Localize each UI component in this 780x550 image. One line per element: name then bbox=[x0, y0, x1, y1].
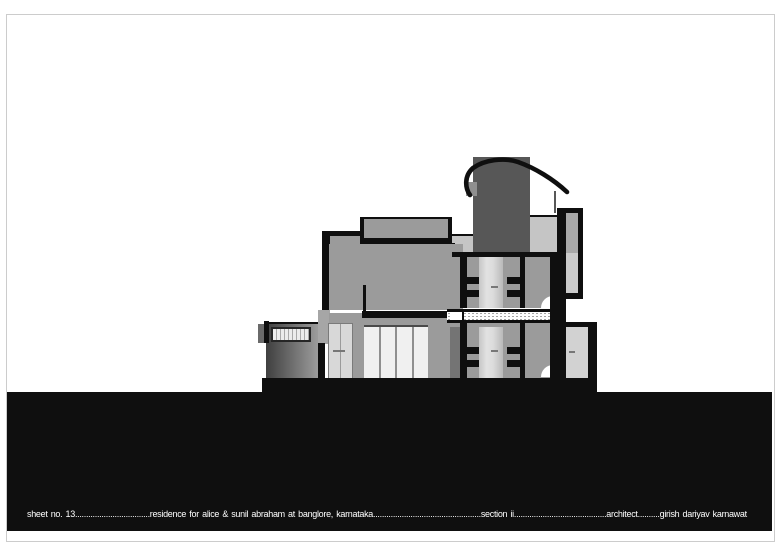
drawing-name-label: section ii bbox=[481, 509, 514, 519]
upper-room-left bbox=[329, 244, 463, 310]
door-lower-handle bbox=[491, 350, 498, 352]
dot-leader: ........................................… bbox=[373, 509, 481, 519]
interior-partition-line bbox=[363, 285, 366, 314]
rail-bar bbox=[467, 277, 479, 284]
wing-panel-border bbox=[578, 208, 583, 295]
dot-leader: .......... bbox=[638, 509, 660, 519]
door-lower bbox=[479, 327, 503, 378]
rail-bar bbox=[507, 347, 520, 354]
project-title-label: residence for alice & sunil abraham at b… bbox=[150, 509, 373, 519]
sheet-number-label: sheet no. 13 bbox=[27, 509, 75, 519]
curved-roof-canopy bbox=[455, 145, 580, 220]
mid-mullion-upper bbox=[520, 257, 525, 308]
rail-bar bbox=[467, 290, 479, 297]
ground-slab-left bbox=[362, 311, 448, 318]
rail-bar bbox=[507, 290, 520, 297]
left-entry-door-handle bbox=[333, 350, 345, 352]
glass-door-pane bbox=[364, 327, 379, 380]
dot-leader: .................................. bbox=[75, 509, 150, 519]
mid-wall-lower bbox=[460, 322, 467, 378]
wing-step bbox=[557, 293, 583, 299]
left-wing-cap-bar bbox=[264, 321, 269, 343]
upper-beam bbox=[452, 252, 557, 257]
wing-panel-lower bbox=[566, 253, 578, 295]
title-bar: sheet no. 13............................… bbox=[27, 509, 773, 519]
rail-bar bbox=[467, 360, 479, 367]
roof-parapet-band-right bbox=[530, 215, 557, 255]
door-upper-handle bbox=[491, 286, 498, 288]
mid-wall-upper bbox=[460, 257, 467, 308]
rail-bar bbox=[507, 277, 520, 284]
rail-bar bbox=[507, 360, 520, 367]
left-wing-wall bbox=[318, 343, 325, 382]
drawing-sheet: sheet no. 13............................… bbox=[0, 0, 780, 550]
glass-door-pane bbox=[381, 327, 396, 380]
floor-slab-white-square bbox=[450, 312, 464, 320]
roof-box bbox=[360, 217, 452, 240]
wing-door-handle bbox=[569, 351, 575, 353]
left-wing-window bbox=[271, 327, 311, 342]
architect-label: architect bbox=[606, 509, 637, 519]
glass-door-pane bbox=[414, 327, 429, 380]
glass-door-pane bbox=[397, 327, 412, 380]
roof-curve bbox=[466, 160, 567, 195]
glass-door-unit bbox=[364, 325, 428, 380]
right-wall-main bbox=[550, 252, 557, 378]
architect-name-label: girish dariyav karnawat bbox=[660, 509, 747, 519]
rail-bar bbox=[467, 347, 479, 354]
dot-leader: ........................................… bbox=[514, 509, 606, 519]
door-upper bbox=[479, 257, 503, 308]
wing-right-wall bbox=[588, 322, 597, 382]
mid-mullion-lower bbox=[520, 322, 525, 378]
ground-mid-dark-wall bbox=[450, 327, 460, 378]
